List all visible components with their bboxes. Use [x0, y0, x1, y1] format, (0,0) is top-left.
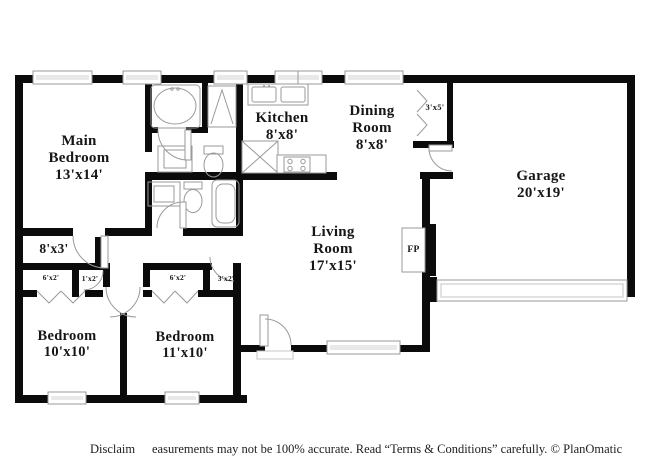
room-label-bedroom-11: Bedroom 11'x10' — [140, 329, 230, 362]
closet-label: 3'x2' — [212, 275, 240, 283]
room-dims: 17'x15' — [293, 258, 373, 275]
door-leaf — [185, 130, 191, 160]
room-label-bedroom-10: Bedroom 10'x10' — [22, 328, 112, 361]
wall-fireplace-nook — [424, 224, 436, 276]
closet-dims: 3'x5' — [426, 102, 445, 112]
hall-label: 8'x3' — [26, 241, 82, 256]
door-arc — [106, 287, 136, 317]
wall — [15, 75, 635, 83]
wall — [420, 172, 453, 179]
faucet-icon — [268, 85, 270, 87]
window — [48, 392, 86, 404]
room-dims: 10'x10' — [22, 344, 112, 360]
wall — [234, 263, 241, 270]
bathtub-basin — [216, 184, 235, 223]
wall — [233, 263, 241, 403]
faucet-icon — [177, 88, 179, 90]
disclaimer-text: easurements may not be 100% accurate. Re… — [152, 442, 622, 457]
bifold-door — [417, 90, 427, 136]
faucet-icon — [263, 85, 265, 87]
bathroom-fixtures — [148, 180, 239, 227]
hall-dims: 8'x3' — [39, 241, 68, 256]
wall — [422, 277, 437, 302]
room-name: Bedroom — [37, 328, 96, 344]
window — [33, 71, 92, 84]
sink-basin — [164, 150, 186, 168]
room-name: Main Bedroom — [49, 133, 110, 166]
wall — [143, 263, 212, 270]
wall — [15, 228, 73, 236]
wall — [627, 75, 635, 297]
door-arc — [158, 130, 188, 160]
closet-label: 6'x2' — [33, 274, 69, 282]
disclaimer-bar: Disclaim easurements may not be 100% acc… — [0, 442, 650, 458]
faucet-icon — [171, 88, 173, 90]
bathtub — [151, 85, 200, 128]
closet-dims: 1'x2' — [82, 274, 98, 283]
closet-label-pantry: 3'x5' — [415, 103, 455, 113]
window — [345, 71, 403, 84]
room-name: Bedroom — [155, 329, 214, 345]
wall — [148, 172, 243, 180]
fireplace-abbr: FP — [407, 245, 419, 255]
sink-basin — [154, 186, 174, 202]
closet-dims: 6'x2' — [43, 273, 59, 282]
room-name: Kitchen — [256, 110, 309, 126]
wall — [202, 83, 208, 133]
wall — [143, 290, 152, 297]
door-leaf — [429, 145, 452, 151]
disclaimer-prefix: Disclaim — [90, 442, 135, 457]
window — [327, 341, 400, 354]
room-name: Dining Room — [349, 103, 394, 136]
closet-dims: 6'x2' — [170, 273, 186, 282]
floor-plan-page: Main Bedroom 13'x14' Kitchen 8'x8' Dinin… — [0, 0, 650, 473]
wall — [447, 83, 453, 148]
toilet-tank — [184, 182, 202, 189]
garage-door — [437, 280, 627, 301]
wall — [15, 290, 37, 297]
window — [214, 71, 247, 84]
room-label-kitchen: Kitchen 8'x8' — [237, 110, 327, 144]
wall — [85, 290, 103, 297]
shower-icon — [211, 90, 233, 124]
front-door-leaf — [260, 315, 268, 346]
room-dims: 20'x19' — [496, 185, 586, 202]
bathtub-basin — [154, 88, 196, 124]
door-leaf — [101, 236, 108, 268]
door-leaf — [180, 202, 186, 228]
room-dims: 13'x14' — [39, 167, 119, 184]
closet-dims: 3'x2' — [218, 274, 234, 283]
wall — [291, 345, 328, 352]
closet-label: 1'x2' — [76, 275, 104, 283]
room-name: Living Room — [311, 224, 354, 257]
front-door-arc — [265, 319, 291, 345]
door-arc — [110, 287, 140, 317]
room-name: Garage — [516, 168, 565, 184]
wall — [105, 228, 148, 236]
window — [165, 392, 199, 404]
room-dims: 8'x8' — [332, 137, 412, 154]
door-threshold — [257, 351, 293, 359]
room-label-living-room: Living Room 17'x15' — [293, 224, 373, 275]
wall — [183, 228, 243, 236]
wall — [198, 290, 241, 297]
window — [123, 71, 161, 84]
wall — [120, 313, 127, 403]
fireplace-label: FP — [402, 245, 425, 256]
room-dims: 8'x8' — [237, 127, 327, 144]
room-dims: 11'x10' — [140, 345, 230, 361]
room-label-dining-room: Dining Room 8'x8' — [332, 103, 412, 154]
window — [275, 71, 322, 84]
closet-label: 6'x2' — [160, 274, 196, 282]
room-label-main-bedroom: Main Bedroom 13'x14' — [39, 133, 119, 184]
room-label-garage: Garage 20'x19' — [496, 168, 586, 202]
bifold-door — [152, 291, 198, 303]
toilet — [184, 190, 202, 213]
